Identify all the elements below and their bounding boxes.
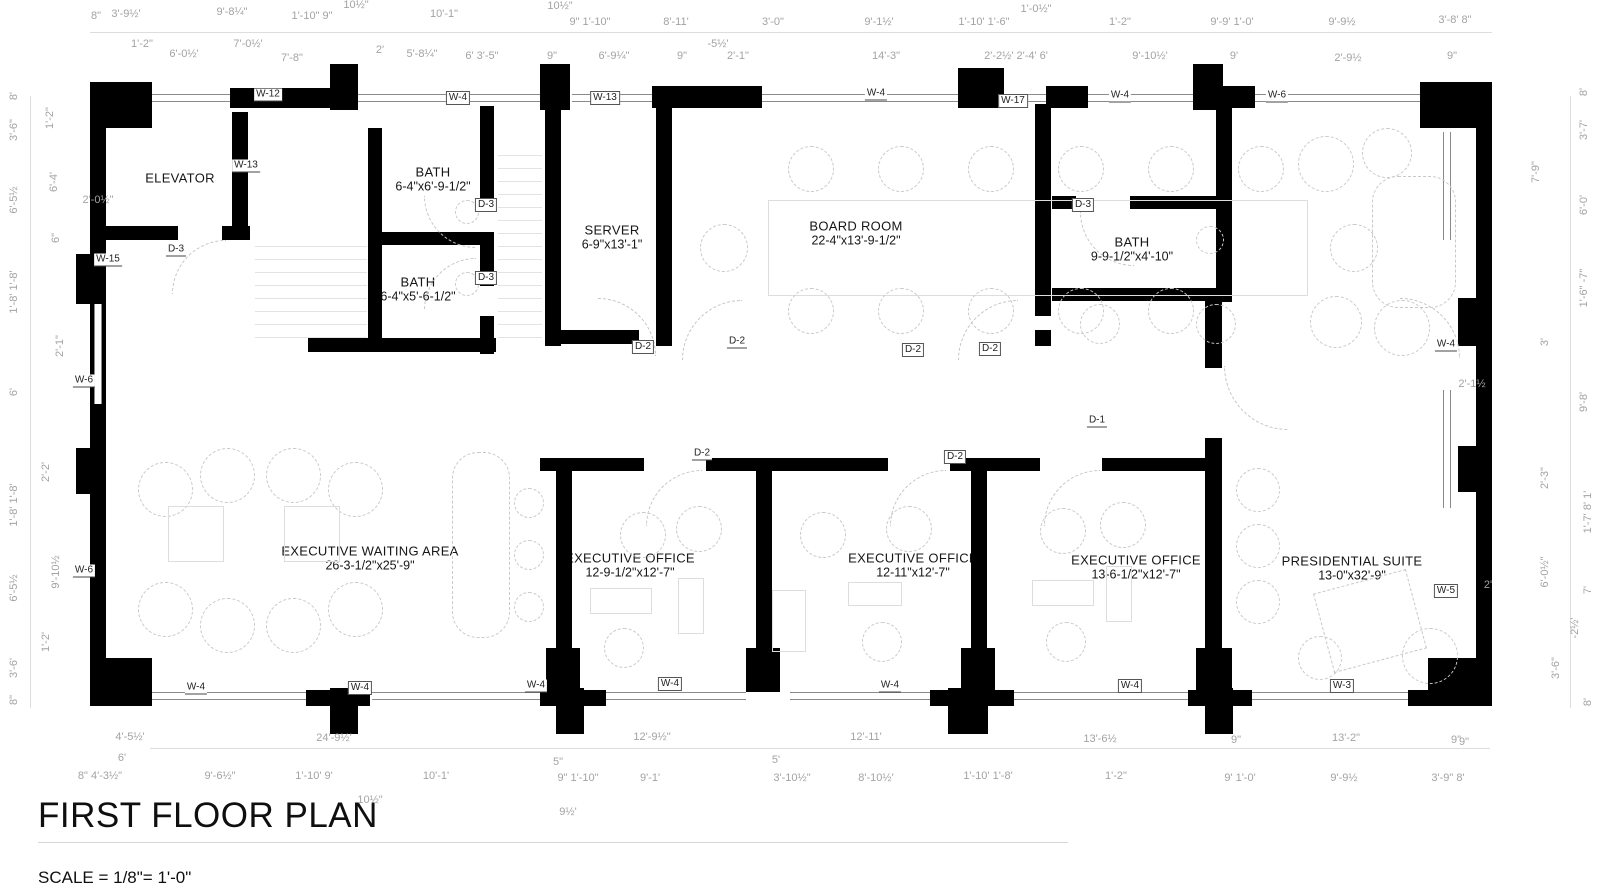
- furniture-chair: [700, 224, 748, 272]
- furniture-chair: [878, 146, 924, 192]
- furniture-item: [678, 578, 704, 634]
- dimension-label: 10½": [357, 794, 382, 806]
- wall-segment: [1188, 690, 1252, 706]
- dimension-label: 9": [547, 50, 557, 62]
- dimension-label: 1'-2": [1105, 770, 1127, 782]
- room-name: EXECUTIVE OFFICE: [1071, 553, 1201, 568]
- window: [1252, 692, 1408, 700]
- furniture-chair: [1402, 628, 1458, 684]
- wall-tag: W-17: [998, 94, 1028, 108]
- dimension-label: 6'-0': [1578, 195, 1590, 215]
- dimension-label: 6'-5½: [8, 574, 20, 601]
- window: [606, 692, 746, 700]
- door-tag: D-3: [1072, 198, 1094, 212]
- door-tag: D-2: [902, 343, 924, 357]
- wall-segment: [1046, 86, 1088, 108]
- furniture-chair: [1046, 622, 1086, 662]
- dimension-label: 1'-10' 1'-8': [963, 770, 1012, 782]
- dimension-label: 1'-2': [40, 632, 52, 652]
- wall-segment: [706, 458, 888, 471]
- wall-segment: [746, 648, 780, 692]
- furniture-chair: [328, 582, 383, 637]
- dimension-label: 1'-2": [44, 107, 56, 129]
- window: [790, 692, 930, 700]
- room-dims: 12-9-1/2"x12'-7": [565, 566, 695, 580]
- dimension-label: 2': [1484, 579, 1492, 591]
- wall-tag: W-5: [1434, 584, 1458, 598]
- wall-tag: W-4: [525, 680, 547, 693]
- dimension-label: 9": [1459, 736, 1469, 748]
- door-tag: D-3: [475, 271, 497, 285]
- window: [152, 94, 230, 102]
- wall-segment: [545, 104, 561, 346]
- dimension-label: 1'-8' 1'-8': [8, 483, 20, 526]
- door-arc: [682, 300, 742, 360]
- furniture-chair: [1040, 508, 1086, 554]
- wall-tag: W-6: [73, 375, 95, 388]
- dimension-label: 3'-8' 8": [1438, 14, 1471, 26]
- furniture-item: [1106, 566, 1132, 622]
- furniture-chair: [800, 512, 846, 558]
- wall-segment: [540, 458, 644, 471]
- plan-scale: SCALE = 1/8"= 1'-0": [38, 868, 191, 887]
- dimension-label: 10½": [343, 0, 368, 11]
- furniture-chair: [200, 598, 255, 653]
- dimension-label: 1'-10" 9": [291, 10, 332, 22]
- furniture-chair: [788, 288, 834, 334]
- furniture-chair: [266, 598, 321, 653]
- dimension-label: 2'-0½": [82, 194, 113, 206]
- guide-line: [1570, 96, 1571, 708]
- dimension-label: 4'-5½': [115, 731, 144, 743]
- dimension-label: 7'-8": [281, 52, 303, 64]
- dimension-label: 2': [376, 44, 384, 56]
- dimension-label: 9½': [559, 806, 576, 818]
- furniture-chair: [1196, 226, 1224, 254]
- dimension-label: 9'-9½: [1330, 772, 1357, 784]
- stair-treads: [255, 246, 367, 340]
- furniture-chair: [878, 288, 924, 334]
- wall-segment: [480, 106, 494, 200]
- room-dims: 12-11"x12'-7": [848, 566, 978, 580]
- dimension-label: 6'-9¼": [598, 50, 629, 62]
- dimension-label: 13'-6½: [1083, 733, 1116, 745]
- wall-segment: [222, 226, 250, 240]
- dimension-label: 9'-9½: [1328, 16, 1355, 28]
- furniture-chair: [1196, 304, 1236, 344]
- room-name: ELEVATOR: [145, 171, 215, 186]
- dimension-label: 9' 1'-0': [1224, 772, 1255, 784]
- dimension-label: 3'-6": [8, 119, 20, 141]
- wall-tag: W-4: [879, 680, 901, 693]
- wall-segment: [1458, 446, 1492, 492]
- dimension-label: 10½": [547, 0, 572, 12]
- dimension-label: 8': [8, 92, 20, 100]
- window: [1014, 692, 1188, 700]
- wall-segment: [1476, 82, 1492, 706]
- furniture-item: [768, 200, 1308, 296]
- guide-line: [90, 32, 1492, 33]
- room-label-executive-office-2: EXECUTIVE OFFICE 12-11"x12'-7": [848, 551, 978, 580]
- furniture-chair: [1238, 146, 1284, 192]
- room-label-bath-1: BATH 6-4"x6'-9-1/2": [395, 165, 470, 194]
- wall-segment: [546, 648, 580, 692]
- room-name: SERVER: [582, 223, 643, 238]
- wall-tag: W-6: [1266, 90, 1288, 103]
- door-tag: D-3: [166, 244, 186, 257]
- furniture-chair: [1298, 636, 1342, 680]
- dimension-label: 10'-1': [423, 770, 449, 782]
- wall-tag: W-13: [232, 160, 260, 173]
- dimension-label: 1'-7' 8' 1': [1582, 491, 1594, 534]
- door-tag: D-2: [692, 448, 712, 461]
- furniture-chair: [514, 592, 544, 622]
- dimension-label: 7'-0½': [233, 38, 262, 50]
- dimension-label: 5": [553, 756, 563, 768]
- dimension-label: 12'-9½": [633, 731, 670, 743]
- window: [372, 692, 540, 700]
- wall-segment: [1102, 458, 1222, 471]
- dimension-label: 1'-6" -7": [1578, 269, 1590, 308]
- furniture-chair: [1362, 128, 1412, 178]
- wall-tag: W-4: [446, 91, 470, 105]
- dimension-label: 3'-7': [1578, 120, 1590, 140]
- dimension-label: 2'-2': [40, 462, 52, 482]
- door-tag: D-2: [979, 342, 1001, 356]
- dimension-label: 2'-1½: [1458, 378, 1485, 390]
- dimension-label: 6'-0½': [169, 48, 198, 60]
- furniture-chair: [862, 622, 902, 662]
- dimension-label: 1'-10' 9': [295, 770, 333, 782]
- wall-tag: W-12: [254, 89, 282, 102]
- wall-segment: [1408, 690, 1468, 706]
- dimension-label: 1'-0½": [1020, 3, 1051, 15]
- dimension-label: 6'-0½": [1539, 556, 1551, 587]
- dimension-label: 9" 1'-10": [557, 772, 598, 784]
- furniture-item: [1032, 580, 1094, 606]
- wall-segment: [961, 648, 995, 692]
- dimension-label: 3'-9" 8': [1431, 772, 1464, 784]
- dimension-label: 3'-6': [8, 658, 20, 678]
- dimension-label: 8": [8, 695, 20, 705]
- title-block: FIRST FLOOR PLAN SCALE = 1/8"= 1'-0": [38, 796, 1068, 887]
- guide-line: [150, 748, 1490, 749]
- room-label-server: SERVER 6-9"x13'-1": [582, 223, 643, 252]
- dimension-label: 9'-10½': [1132, 50, 1167, 62]
- wall-segment: [106, 226, 178, 240]
- dimension-label: 2'-3": [1539, 467, 1551, 489]
- furniture-item: [168, 506, 224, 562]
- furniture-chair: [1236, 524, 1280, 568]
- furniture-chair: [676, 506, 722, 552]
- furniture-chair: [514, 488, 544, 518]
- dimension-label: 6'-4': [48, 172, 60, 192]
- dimension-label: 6' 3'-5": [465, 50, 498, 62]
- window: [762, 94, 958, 102]
- window: [1088, 94, 1193, 102]
- dimension-label: 1'-2": [131, 38, 153, 50]
- furniture-chair: [1330, 224, 1378, 272]
- furniture-chair: [1100, 502, 1146, 548]
- wall-tag: W-4: [1435, 339, 1457, 352]
- furniture-item: [772, 590, 806, 652]
- window: [94, 304, 102, 404]
- dimension-label: 6'-5½: [8, 186, 20, 213]
- furniture-item: [452, 452, 510, 638]
- door-tag: D-1: [1087, 415, 1107, 428]
- dimension-label: 9": [1447, 50, 1457, 62]
- dimension-label: 9'-8': [1578, 392, 1590, 412]
- dimension-label: 6": [50, 233, 62, 243]
- furniture-chair: [886, 506, 932, 552]
- wall-tag: W-4: [865, 88, 887, 101]
- dimension-label: 2'-9½: [1334, 52, 1361, 64]
- furniture-chair: [1080, 304, 1120, 344]
- dimension-label: 9'-10½: [50, 555, 62, 588]
- dimension-label: 2'-1": [54, 335, 66, 357]
- wall-segment: [308, 338, 496, 352]
- dimension-label: 10'-1": [430, 8, 458, 20]
- dimension-label: 8': [1578, 88, 1590, 96]
- window: [1443, 390, 1451, 508]
- wall-tag: W-4: [1118, 679, 1142, 693]
- dimension-label: 3': [1539, 338, 1551, 346]
- wall-segment: [1458, 298, 1492, 346]
- window: [1335, 94, 1420, 102]
- room-label-elevator: ELEVATOR: [145, 171, 215, 186]
- wall-tag: W-3: [1330, 679, 1354, 693]
- furniture-chair: [1236, 580, 1280, 624]
- wall-segment: [656, 104, 672, 346]
- dimension-label: 7'-9": [1530, 161, 1542, 183]
- dimension-label: 8'-10½': [858, 772, 893, 784]
- furniture-chair: [138, 582, 193, 637]
- dimension-label: -2½': [1569, 617, 1581, 638]
- furniture-chair: [266, 448, 321, 503]
- furniture-item: [284, 506, 340, 562]
- room-label-executive-office-3: EXECUTIVE OFFICE 13-6-1/2"x12'-7": [1071, 553, 1201, 582]
- furniture-chair: [1310, 296, 1362, 348]
- plan-title: FIRST FLOOR PLAN: [38, 796, 1068, 836]
- wall-segment: [230, 88, 346, 108]
- wall-tag: W-13: [590, 91, 620, 105]
- furniture-chair: [968, 146, 1014, 192]
- dimension-label: 24'-9½': [316, 732, 351, 744]
- dimension-label: 9'-6½": [204, 770, 235, 782]
- furniture-chair: [788, 146, 834, 192]
- dimension-label: 6': [118, 752, 126, 764]
- room-dims: 6-9"x13'-1": [582, 238, 643, 252]
- door-arc: [1224, 366, 1288, 430]
- wall-segment: [1196, 648, 1232, 692]
- wall-segment: [1035, 330, 1051, 346]
- dimension-label: 1'-2": [1109, 16, 1131, 28]
- dimension-label: 5': [772, 754, 780, 766]
- dimension-label: 3'-10½": [773, 772, 810, 784]
- wall-tag: W-15: [94, 254, 122, 267]
- dimension-label: 8" 4'-3½": [78, 770, 122, 782]
- furniture-item: [590, 588, 652, 614]
- room-name: EXECUTIVE OFFICE: [848, 551, 978, 566]
- furniture-chair: [968, 288, 1014, 334]
- dimension-label: 8": [91, 10, 101, 22]
- dimension-label: 1'-8' 1'-8': [8, 270, 20, 313]
- title-underline: [38, 842, 1068, 843]
- dimension-label: 3'-6": [1550, 657, 1562, 679]
- dimension-label: 9": [677, 50, 687, 62]
- dimension-label: 9': [1230, 50, 1238, 62]
- dimension-label: 12'-11': [850, 731, 882, 743]
- furniture-item: [848, 582, 902, 606]
- furniture-chair: [1236, 468, 1280, 512]
- furniture-chair: [1374, 300, 1430, 356]
- dimension-label: 9": [1231, 734, 1241, 746]
- furniture-chair: [200, 448, 255, 503]
- room-dims: 6-4"x6'-9-1/2": [395, 180, 470, 194]
- wall-tag: W-4: [658, 677, 682, 691]
- dimension-label: -5½': [707, 38, 728, 50]
- dimension-label: 9'-9' 1'-0': [1210, 16, 1253, 28]
- door-tag: D-3: [475, 198, 497, 212]
- wall-segment: [76, 448, 106, 494]
- dimension-label: 14'-3": [872, 50, 900, 62]
- window: [152, 692, 306, 700]
- furniture-chair: [1148, 288, 1194, 334]
- door-tag: D-2: [944, 450, 966, 464]
- wall-segment: [540, 690, 606, 706]
- wall-tag: W-4: [1109, 90, 1131, 103]
- wall-tag: W-4: [348, 681, 372, 695]
- furniture-chair: [620, 512, 666, 558]
- wall-segment: [90, 658, 152, 706]
- floor-plan-canvas: ELEVATOR BATH 6-4"x6'-9-1/2" BATH 6-4"x5…: [0, 0, 1600, 887]
- dimension-label: 5'-8¼": [406, 48, 437, 60]
- door-tag: D-2: [727, 336, 747, 349]
- dimension-label: 13'-2": [1332, 732, 1360, 744]
- furniture-chair: [514, 540, 544, 570]
- wall-segment: [930, 690, 1014, 706]
- furniture-chair: [1058, 146, 1104, 192]
- wall-tag: W-4: [185, 682, 207, 695]
- dimension-label: 9'-1': [640, 772, 660, 784]
- dimension-label: 7': [1582, 586, 1594, 594]
- furniture-chair: [604, 628, 644, 668]
- wall-segment: [232, 112, 248, 240]
- dimension-label: 2'-1": [727, 50, 749, 62]
- stair-treads: [498, 155, 542, 340]
- room-name: PRESIDENTIAL SUITE: [1282, 554, 1423, 569]
- wall-segment: [958, 68, 1004, 108]
- door-tag: D-2: [632, 340, 654, 354]
- dimension-label: 8': [1582, 698, 1594, 706]
- wall-tag: W-6: [73, 565, 95, 578]
- furniture-chair: [1298, 136, 1354, 192]
- furniture-item: [1372, 176, 1456, 308]
- wall-segment: [330, 64, 358, 110]
- room-label-executive-office-1: EXECUTIVE OFFICE 12-9-1/2"x12'-7": [565, 551, 695, 580]
- dimension-label: 9'-8¼": [216, 6, 247, 18]
- dimension-label: 2'-2½' 2'-4' 6': [984, 50, 1048, 62]
- guide-line: [30, 96, 31, 708]
- furniture-chair: [1148, 146, 1194, 192]
- dimension-label: 3'-9½': [111, 8, 140, 20]
- dimension-label: 9" 1'-10": [569, 16, 610, 28]
- room-name: BATH: [395, 165, 470, 180]
- dimension-label: 9'-1½': [864, 16, 893, 28]
- dimension-label: 1'-10' 1'-6": [958, 16, 1009, 28]
- dimension-label: 6': [8, 388, 20, 396]
- dimension-label: 8'-11': [663, 16, 688, 28]
- dimension-label: 3'-0": [762, 16, 784, 28]
